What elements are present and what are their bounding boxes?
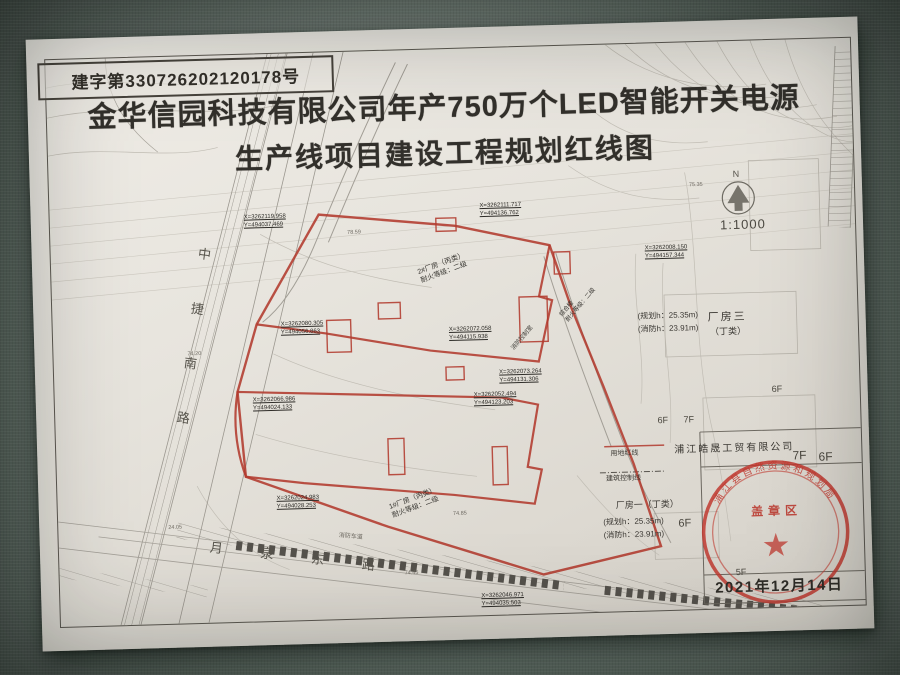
coord-label: X=3262080.305Y=494056.863: [281, 321, 324, 337]
floor-label: 7F: [792, 448, 806, 463]
south-road: [57, 500, 866, 627]
plant1-name: 厂房一（丁类）: [616, 499, 679, 512]
paper-sheet: 建字第330726202120178号 金华信园科技有限公司年产750万个LED…: [26, 17, 875, 652]
plant1-fire-height: (消防h：23.91m): [604, 529, 665, 541]
spot-elevation: 75.35: [689, 182, 703, 189]
floor-label: 6F: [818, 449, 832, 464]
coord-label: X=3262046.971Y=494035.503: [481, 592, 524, 608]
floor-label: 6F: [678, 517, 691, 531]
coord-label: X=3262008.150Y=494157.344: [645, 244, 688, 260]
floor-label: 6F: [657, 415, 668, 427]
north-arrow-icon: [722, 181, 755, 214]
floor-label: 5F: [736, 567, 747, 579]
scale-label: 1:1000: [720, 216, 766, 234]
coord-label: X=3262024.983Y=494028.253: [276, 495, 319, 511]
date-label: 2021年12月14日: [715, 576, 844, 598]
plant3-class: （丁类）: [710, 326, 746, 338]
spot-elevation: 78.59: [347, 229, 361, 236]
floor-label: 6F: [772, 384, 783, 396]
coord-label: X=3262073.264Y=494131.306: [499, 368, 542, 384]
coord-label: X=3262072.058Y=494115.938: [449, 326, 492, 342]
coord-label: X=3262111.717Y=494136.762: [479, 202, 521, 218]
legend-site-redline: 用地红线: [610, 450, 638, 460]
photo-of-planning-document: 建字第330726202120178号 金华信园科技有限公司年产750万个LED…: [0, 0, 900, 675]
stamp-area-label: 盖章区: [751, 503, 802, 519]
coord-label: X=3262119.958Y=494037.469: [244, 214, 287, 230]
plant3-name: 厂房三: [707, 311, 746, 326]
spot-elevation: 24.05: [168, 525, 182, 532]
plant1-plan-height: (规划h：25.35m): [603, 516, 664, 528]
floor-label: 7F: [683, 414, 694, 426]
coord-label: X=3262052.494Y=494123.203: [474, 391, 517, 407]
plant3-fire-height: (消防h：23.91m): [638, 323, 699, 335]
spot-elevation: 74.85: [453, 511, 467, 518]
north-label: N: [733, 169, 740, 180]
plant3-plan-height: (规划h：25.35m): [637, 310, 698, 322]
legend-control-line: 建筑控制线: [606, 475, 641, 485]
seal-star-icon: ★: [761, 527, 791, 564]
coord-label: X=3262066.986Y=494024.133: [253, 396, 296, 412]
